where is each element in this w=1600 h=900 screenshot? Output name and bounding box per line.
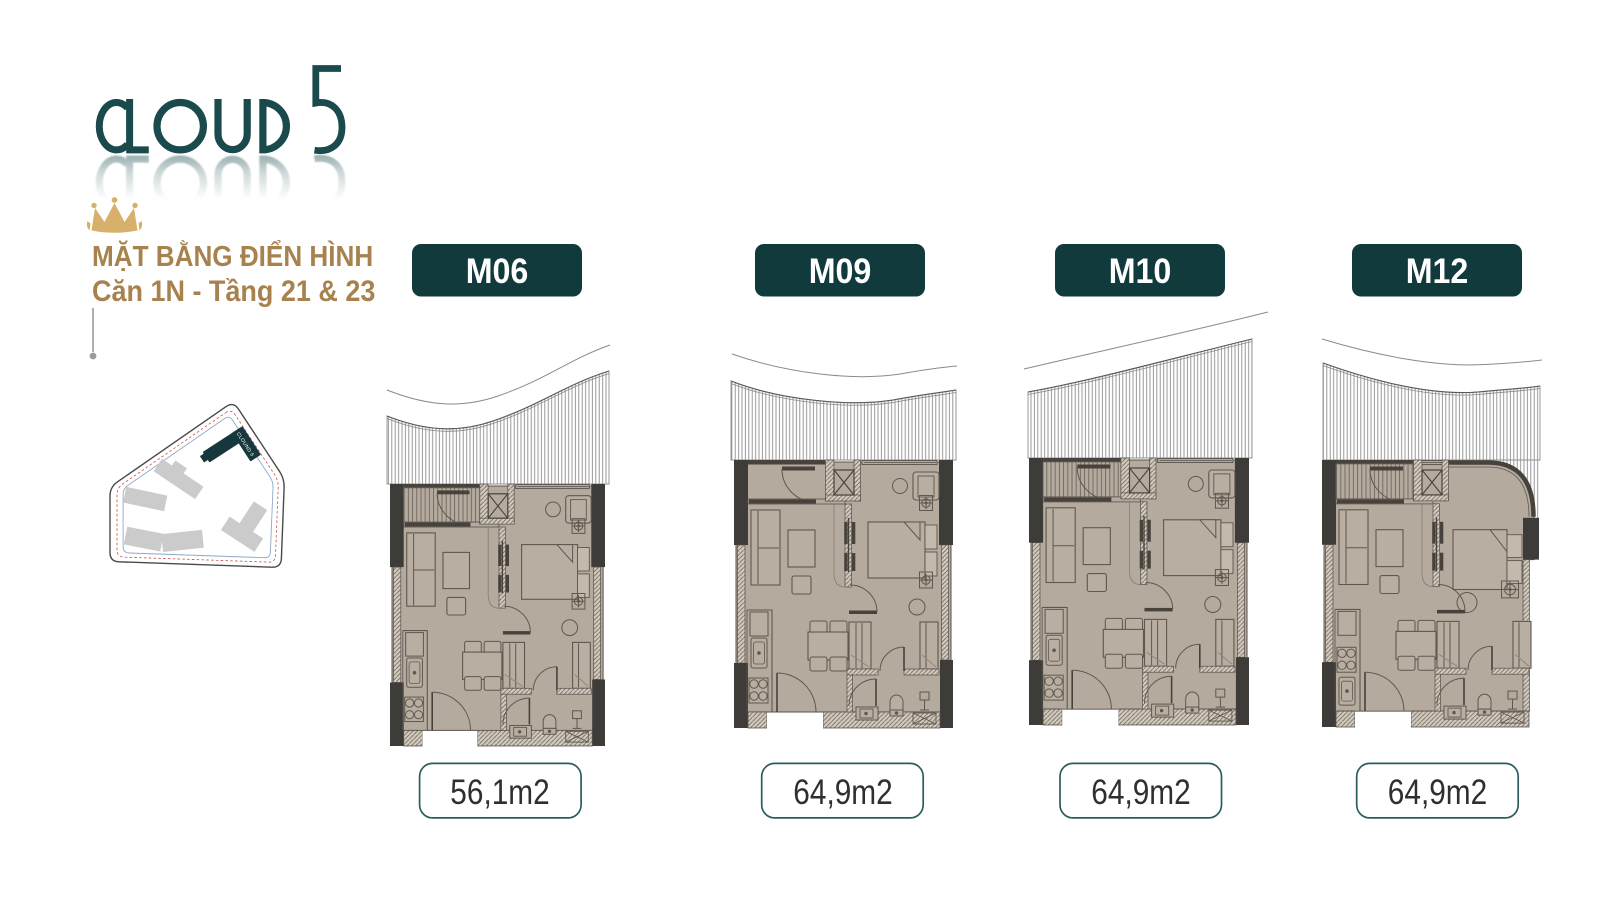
svg-text:56,1m2: 56,1m2	[450, 772, 549, 812]
svg-text:Căn 1N - Tầng 21 & 23: Căn 1N - Tầng 21 & 23	[92, 275, 375, 309]
svg-text:M06: M06	[466, 253, 529, 292]
svg-text:M12: M12	[1406, 253, 1469, 292]
svg-text:M10: M10	[1109, 253, 1172, 292]
svg-text:64,9m2: 64,9m2	[793, 772, 892, 812]
svg-text:MẶT BẰNG ĐIỂN HÌNH: MẶT BẰNG ĐIỂN HÌNH	[92, 240, 373, 273]
svg-text:M09: M09	[809, 253, 872, 292]
svg-text:64,9m2: 64,9m2	[1388, 772, 1487, 812]
svg-text:64,9m2: 64,9m2	[1091, 772, 1190, 812]
